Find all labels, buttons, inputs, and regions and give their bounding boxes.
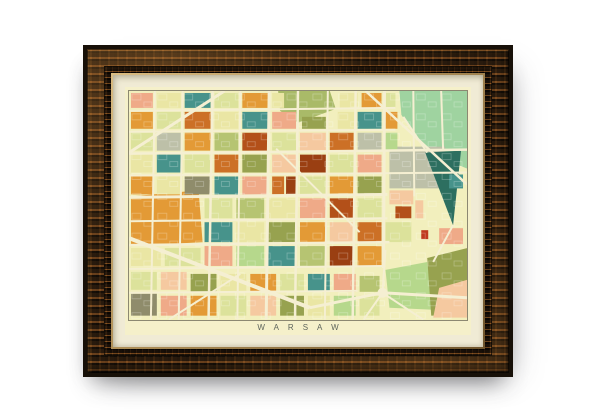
- frame-moulding: WARSAW: [87, 49, 509, 373]
- frame-gilt-lip: WARSAW: [111, 73, 485, 349]
- map-print: WARSAW: [125, 87, 471, 335]
- product-photo: WARSAW: [0, 0, 600, 417]
- print-title: WARSAW: [257, 323, 347, 332]
- mat-board: WARSAW: [113, 75, 483, 347]
- map-rule-border: [128, 90, 468, 321]
- print-title-strip: WARSAW: [128, 321, 468, 335]
- frame-inner-moulding: WARSAW: [104, 66, 492, 356]
- warsaw-map-canvas: [129, 91, 467, 320]
- picture-frame: WARSAW: [83, 45, 513, 377]
